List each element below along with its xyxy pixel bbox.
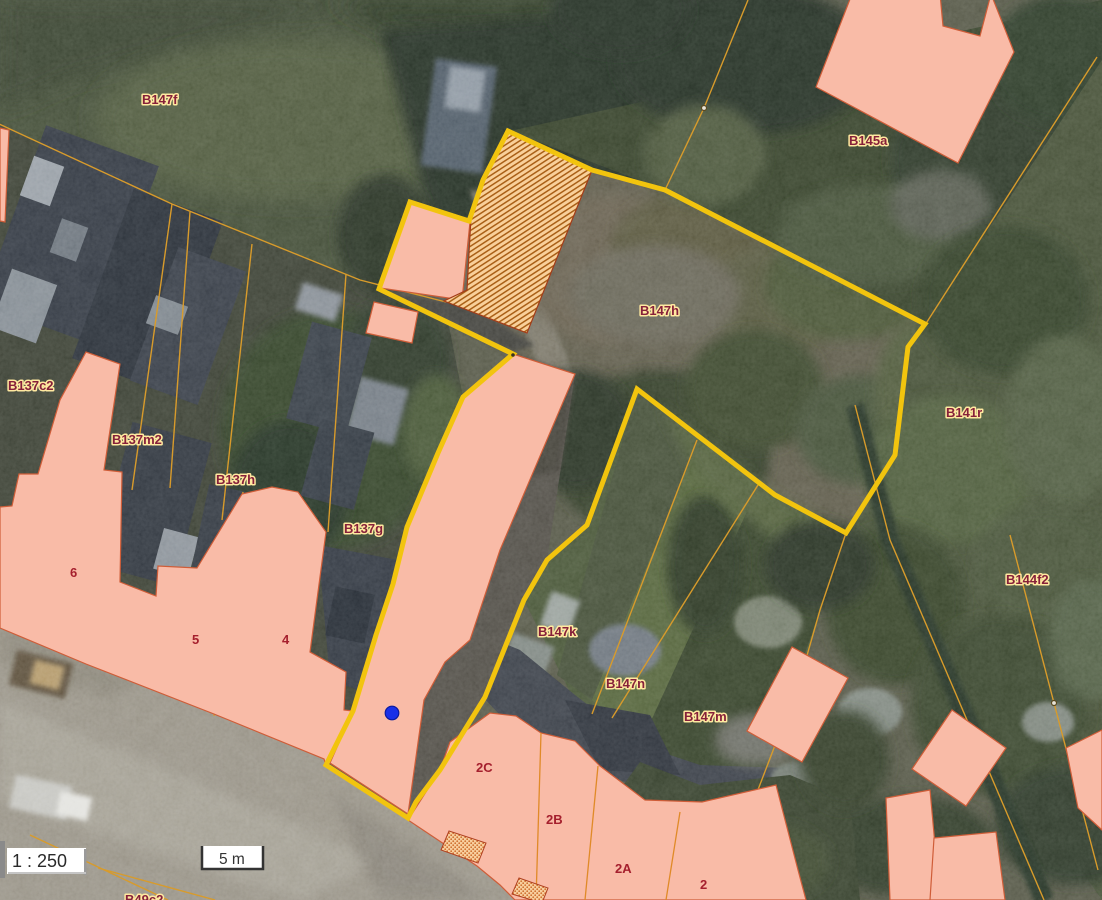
svg-text:5 m: 5 m <box>219 851 245 868</box>
svg-text:B137m2: B137m2 <box>112 432 162 447</box>
svg-text:B147h: B147h <box>640 303 679 318</box>
svg-text:2: 2 <box>700 877 707 892</box>
svg-text:B137g: B137g <box>344 521 383 536</box>
svg-text:B147m: B147m <box>684 709 727 724</box>
svg-text:2A: 2A <box>615 861 632 876</box>
svg-text:B147f: B147f <box>142 92 178 107</box>
svg-text:4: 4 <box>282 632 290 647</box>
svg-text:B137c2: B137c2 <box>8 378 54 393</box>
svg-text:B147k: B147k <box>538 624 577 639</box>
svg-text:B147n: B147n <box>606 676 645 691</box>
svg-text:B49c2: B49c2 <box>125 892 163 900</box>
svg-text:B137h: B137h <box>216 472 255 487</box>
svg-text:1 : 250: 1 : 250 <box>12 851 67 871</box>
svg-text:5: 5 <box>192 632 199 647</box>
svg-text:B144f2: B144f2 <box>1006 572 1049 587</box>
svg-text:B141r: B141r <box>946 405 982 420</box>
svg-text:2C: 2C <box>476 760 493 775</box>
svg-text:B145a: B145a <box>849 133 888 148</box>
svg-text:6: 6 <box>70 565 77 580</box>
svg-text:2B: 2B <box>546 812 563 827</box>
